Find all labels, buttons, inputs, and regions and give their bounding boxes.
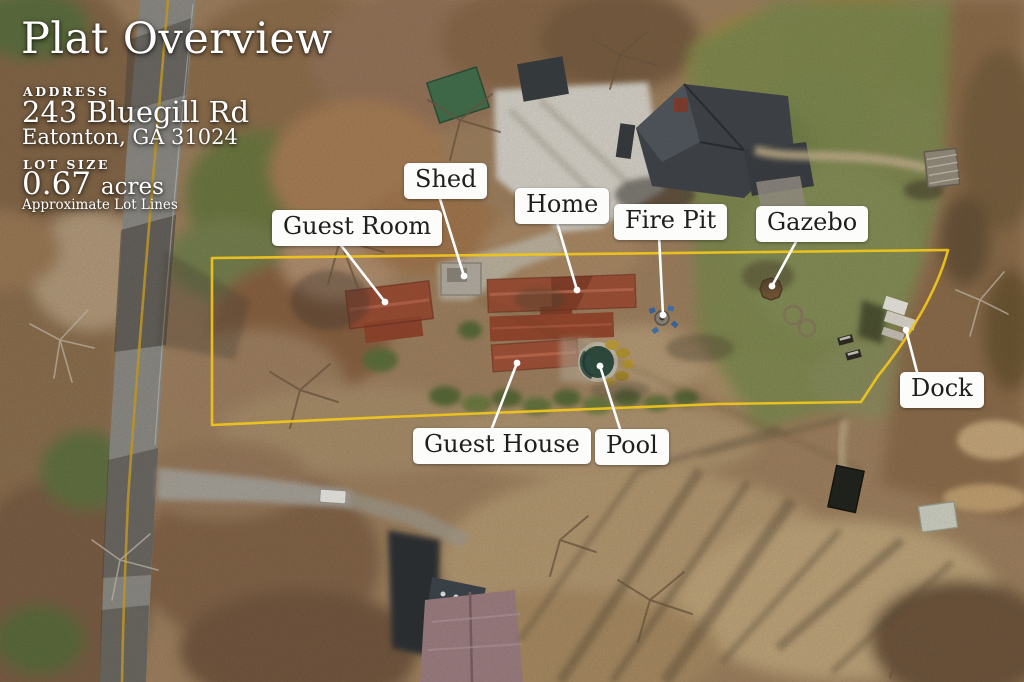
page-title: Plat Overview [21, 14, 333, 64]
lot-lines-note: Approximate Lot Lines [22, 197, 178, 213]
map-label-fire-pit: Fire Pit [614, 204, 727, 240]
map-label-guest-room: Guest Room [272, 210, 442, 246]
map-label-shed: Shed [404, 163, 487, 199]
plat-overview-image: Guest Room Shed Home Fire Pit Gazebo Doc… [0, 0, 1024, 682]
map-label-dock: Dock [900, 372, 984, 408]
address-line1: 243 Bluegill Rd [22, 95, 249, 129]
map-label-guest-house: Guest House [413, 428, 591, 464]
map-label-pool: Pool [595, 429, 669, 465]
map-label-gazebo: Gazebo [756, 206, 868, 242]
address-line2: Eatonton, GA 31024 [22, 125, 238, 149]
map-label-home: Home [515, 188, 609, 224]
